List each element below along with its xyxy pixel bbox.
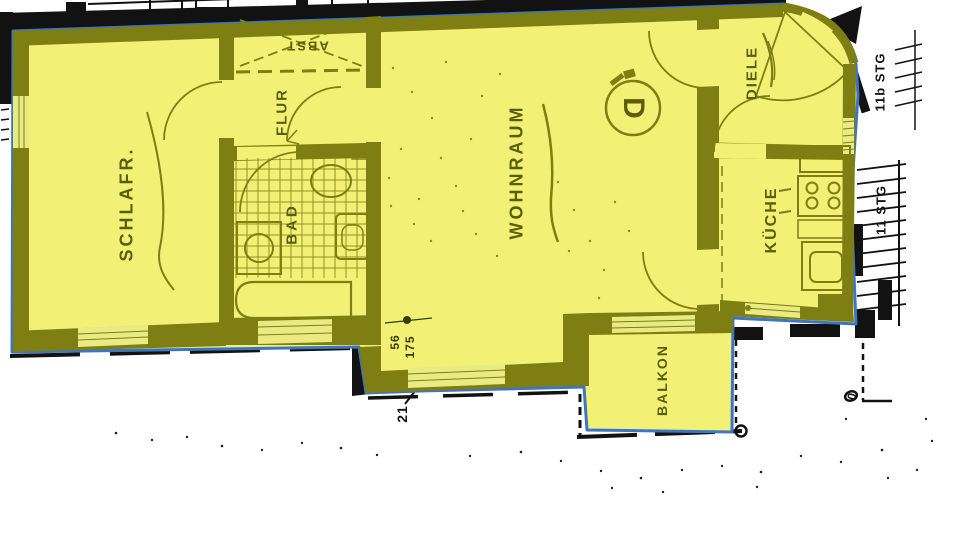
dimension-175: 175 xyxy=(403,335,417,358)
room-label-bad: BAD xyxy=(284,203,301,245)
room-label-wohnraum: WOHNRAUM xyxy=(507,105,528,240)
speckles-outside xyxy=(115,418,934,493)
room-label-kueche: KÜCHE xyxy=(763,187,781,254)
stair-label-lower: 11 STG xyxy=(874,185,889,235)
dimension-56: 56 xyxy=(388,334,402,349)
room-label-abstellraum: ABST xyxy=(285,39,328,54)
apartment-unit xyxy=(12,4,858,432)
room-label-flur: FLUR xyxy=(274,88,291,136)
dimension-21: 21 xyxy=(394,405,410,423)
floorplan-drawing xyxy=(0,0,960,540)
unit-letter: D xyxy=(616,97,650,119)
floor-plan-page: SCHLAFR. FLUR ABST BAD WOHNRAUM DIELE KÜ… xyxy=(0,0,960,540)
room-label-schlafzimmer: SCHLAFR. xyxy=(117,147,138,262)
stair-label-upper: 11b STG xyxy=(873,52,888,111)
room-label-diele: DIELE xyxy=(744,46,761,100)
room-label-balkon: BALKON xyxy=(654,344,670,416)
